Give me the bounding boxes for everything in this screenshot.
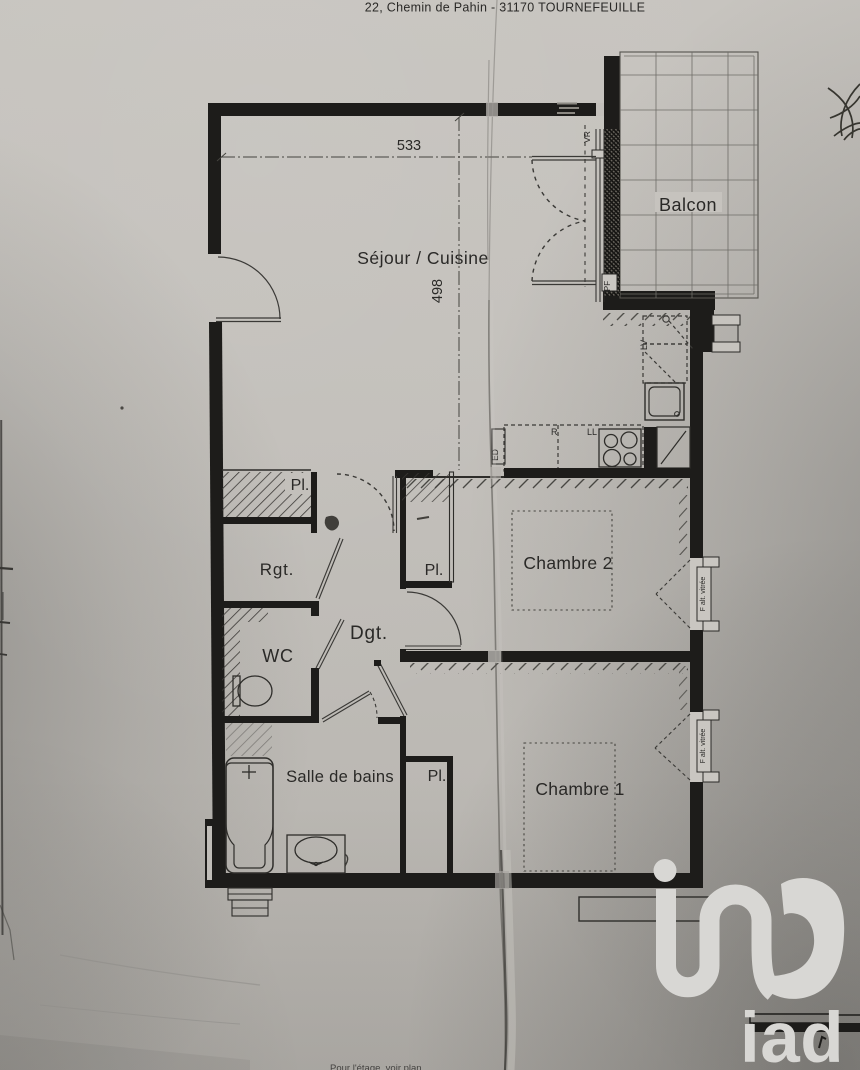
svg-text:Séjour / Cuisine: Séjour / Cuisine (357, 248, 489, 268)
svg-text:Pl.: Pl. (291, 477, 310, 494)
svg-text:F alt. vitrée: F alt. vitrée (700, 729, 707, 764)
svg-text:22, Chemin de Pahin - 31170 TO: 22, Chemin de Pahin - 31170 TOURNEFEUILL… (365, 1, 646, 15)
svg-text:F alt. vitrée: F alt. vitrée (700, 577, 707, 612)
svg-text:R: R (551, 427, 558, 437)
svg-text:Pl.: Pl. (425, 562, 444, 579)
svg-text:VR: VR (582, 131, 592, 143)
svg-text:WC: WC (262, 646, 294, 666)
svg-text:LV: LV (639, 340, 649, 350)
svg-text:Dgt.: Dgt. (350, 623, 388, 644)
svg-text:Pl.: Pl. (428, 768, 447, 785)
svg-text:PF: PF (603, 281, 612, 291)
svg-text:533: 533 (397, 138, 421, 154)
svg-text:Chambre 1: Chambre 1 (535, 779, 624, 799)
svg-text:Balcon: Balcon (659, 195, 717, 215)
svg-text:Pour l'étage, voir plan: Pour l'étage, voir plan (330, 1063, 422, 1070)
svg-text:iad: iad (740, 999, 844, 1070)
svg-text:LL: LL (587, 427, 597, 437)
svg-text:498: 498 (430, 279, 446, 303)
svg-text:Rgt.: Rgt. (260, 560, 294, 579)
svg-text:Chambre 2: Chambre 2 (523, 553, 612, 573)
svg-text:Salle de bains: Salle de bains (286, 768, 394, 786)
